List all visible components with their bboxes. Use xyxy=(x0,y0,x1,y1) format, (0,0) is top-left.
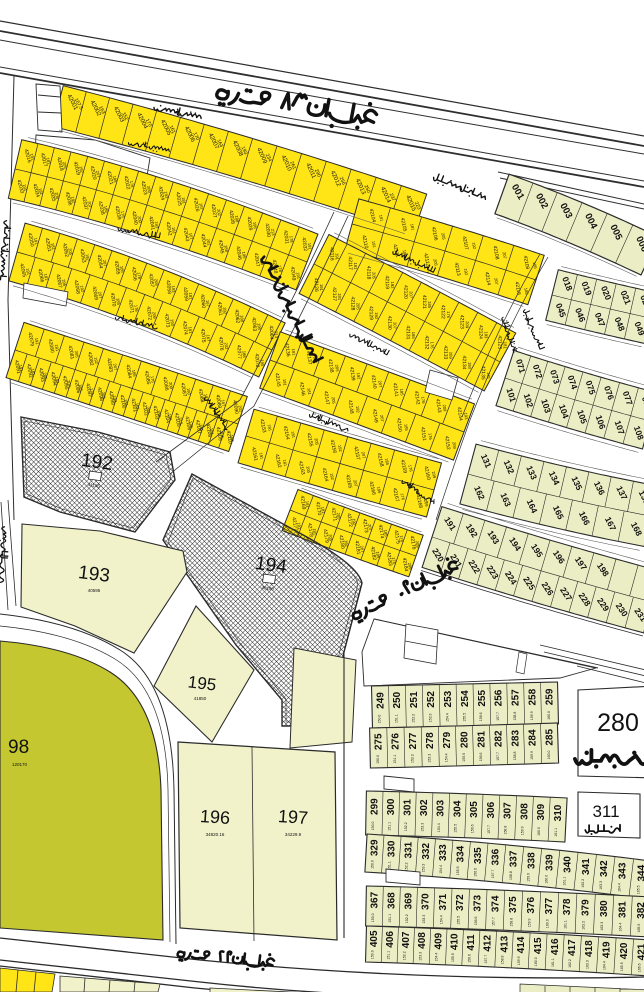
svg-text:283: 283 xyxy=(510,730,521,747)
svg-text:42133: 42133 xyxy=(442,345,448,359)
svg-text:331: 331 xyxy=(404,841,415,858)
svg-text:164.4: 164.4 xyxy=(618,883,622,892)
svg-text:337: 337 xyxy=(508,850,519,867)
svg-text:339: 339 xyxy=(544,854,555,871)
svg-text:197: 197 xyxy=(277,806,308,828)
svg-text:163.3: 163.3 xyxy=(600,922,604,931)
svg-text:157.7: 157.7 xyxy=(484,955,488,964)
svg-text:156.6: 156.6 xyxy=(474,916,478,925)
svg-text:344: 344 xyxy=(636,864,644,881)
svg-text:310: 310 xyxy=(553,804,564,821)
svg-text:193: 193 xyxy=(467,362,472,370)
svg-text:181: 181 xyxy=(503,342,508,350)
svg-text:150.0: 150.0 xyxy=(371,821,375,830)
svg-text:329: 329 xyxy=(370,839,381,856)
svg-text:416: 416 xyxy=(550,938,561,955)
svg-text:340: 340 xyxy=(563,856,574,873)
svg-text:154.4: 154.4 xyxy=(435,953,439,962)
svg-text:42134: 42134 xyxy=(461,356,467,370)
svg-text:159.9: 159.9 xyxy=(517,956,521,965)
svg-text:381: 381 xyxy=(617,901,628,918)
svg-text:306: 306 xyxy=(486,801,497,818)
svg-text:164.4: 164.4 xyxy=(603,961,607,970)
svg-text:256: 256 xyxy=(494,689,505,706)
svg-text:165.5: 165.5 xyxy=(636,885,640,894)
svg-text:411: 411 xyxy=(466,934,477,951)
svg-text:276: 276 xyxy=(391,733,402,750)
svg-text:167: 167 xyxy=(206,334,212,342)
svg-text:120170: 120170 xyxy=(12,762,28,767)
svg-text:195: 195 xyxy=(257,323,262,331)
svg-text:42135: 42135 xyxy=(480,366,486,380)
svg-text:335: 335 xyxy=(473,847,484,864)
svg-text:155.5: 155.5 xyxy=(462,713,466,722)
svg-text:42121: 42121 xyxy=(421,295,427,309)
svg-text:367: 367 xyxy=(370,891,381,908)
svg-text:152.2: 152.2 xyxy=(405,914,409,923)
svg-text:193: 193 xyxy=(484,331,489,339)
svg-text:150.0: 150.0 xyxy=(371,913,375,922)
svg-text:192: 192 xyxy=(390,282,395,290)
svg-text:157.7: 157.7 xyxy=(492,917,496,926)
svg-text:167: 167 xyxy=(205,300,211,308)
svg-text:42128: 42128 xyxy=(349,296,355,310)
svg-text:42074: 42074 xyxy=(181,321,188,336)
svg-text:159.9: 159.9 xyxy=(527,873,531,882)
svg-text:409: 409 xyxy=(433,932,444,949)
svg-text:307: 307 xyxy=(503,802,514,819)
svg-text:156.6: 156.6 xyxy=(467,954,471,963)
svg-text:155.5: 155.5 xyxy=(462,753,466,762)
svg-text:382: 382 xyxy=(636,902,644,919)
svg-text:42075: 42075 xyxy=(199,328,206,343)
svg-text:151.1: 151.1 xyxy=(388,822,392,831)
svg-text:330: 330 xyxy=(387,840,398,857)
svg-text:278: 278 xyxy=(425,732,436,749)
svg-text:309: 309 xyxy=(536,803,547,820)
svg-text:150.0: 150.0 xyxy=(371,860,375,869)
svg-text:153.3: 153.3 xyxy=(419,952,423,961)
svg-text:42117: 42117 xyxy=(347,256,353,270)
svg-text:209: 209 xyxy=(153,279,159,287)
svg-text:368: 368 xyxy=(386,892,397,909)
svg-text:192: 192 xyxy=(374,312,379,320)
svg-text:181: 181 xyxy=(188,326,194,334)
svg-text:151.1: 151.1 xyxy=(388,861,392,870)
svg-text:284: 284 xyxy=(527,729,538,746)
svg-text:374: 374 xyxy=(490,895,501,912)
svg-text:153.3: 153.3 xyxy=(421,823,425,832)
svg-text:378: 378 xyxy=(562,898,573,915)
svg-text:156.6: 156.6 xyxy=(474,868,478,877)
svg-text:152.2: 152.2 xyxy=(412,714,416,723)
svg-text:380: 380 xyxy=(599,900,610,917)
svg-text:205: 205 xyxy=(356,303,361,311)
svg-text:191: 191 xyxy=(296,522,302,530)
svg-text:407: 407 xyxy=(401,931,412,948)
svg-text:285: 285 xyxy=(544,729,555,746)
svg-text:249: 249 xyxy=(375,692,386,709)
svg-text:150.0: 150.0 xyxy=(378,715,382,724)
svg-text:277: 277 xyxy=(408,732,419,749)
svg-text:308: 308 xyxy=(519,803,530,820)
svg-text:155.5: 155.5 xyxy=(451,953,455,962)
svg-text:377: 377 xyxy=(544,897,555,914)
svg-text:153.3: 153.3 xyxy=(422,864,426,873)
svg-text:160.0: 160.0 xyxy=(547,750,551,759)
svg-text:150.0: 150.0 xyxy=(371,950,375,959)
svg-text:42060: 42060 xyxy=(199,294,206,309)
svg-text:42119: 42119 xyxy=(384,275,390,289)
svg-text:160.0: 160.0 xyxy=(534,957,538,966)
svg-text:42061: 42061 xyxy=(216,302,223,317)
svg-text:413: 413 xyxy=(499,935,510,952)
svg-text:42125: 42125 xyxy=(496,335,502,349)
svg-text:155.5: 155.5 xyxy=(454,824,458,833)
svg-text:251: 251 xyxy=(409,691,420,708)
svg-text:420: 420 xyxy=(619,942,630,959)
svg-text:300: 300 xyxy=(386,798,397,815)
svg-text:159.9: 159.9 xyxy=(520,826,524,835)
svg-text:408: 408 xyxy=(417,932,428,949)
svg-text:209: 209 xyxy=(152,312,158,320)
svg-text:373: 373 xyxy=(473,895,484,912)
svg-text:193: 193 xyxy=(77,562,111,587)
svg-text:181: 181 xyxy=(353,262,358,270)
svg-text:153.3: 153.3 xyxy=(422,915,426,924)
svg-text:34820.16: 34820.16 xyxy=(206,832,225,837)
svg-text:158.8: 158.8 xyxy=(513,712,517,721)
svg-text:191: 191 xyxy=(296,272,302,280)
svg-text:163.3: 163.3 xyxy=(599,881,603,890)
svg-text:154.4: 154.4 xyxy=(445,713,449,722)
svg-text:41850: 41850 xyxy=(194,696,207,701)
svg-text:257: 257 xyxy=(511,689,522,706)
svg-text:158.8: 158.8 xyxy=(509,918,513,927)
svg-text:42120: 42120 xyxy=(402,285,408,299)
svg-text:158.8: 158.8 xyxy=(501,955,505,964)
svg-text:301: 301 xyxy=(403,799,414,816)
svg-text:154.4: 154.4 xyxy=(439,865,443,874)
svg-text:421: 421 xyxy=(637,943,644,960)
svg-text:158.8: 158.8 xyxy=(509,871,513,880)
svg-text:371: 371 xyxy=(438,893,449,910)
svg-text:185: 185 xyxy=(427,301,432,309)
svg-text:343: 343 xyxy=(618,862,629,879)
svg-text:282: 282 xyxy=(493,730,504,747)
svg-text:154.4: 154.4 xyxy=(437,823,441,832)
svg-text:158.8: 158.8 xyxy=(513,751,517,760)
svg-text:156.6: 156.6 xyxy=(479,712,483,721)
svg-text:191: 191 xyxy=(307,243,313,251)
svg-text:341: 341 xyxy=(581,858,592,875)
svg-text:42077: 42077 xyxy=(235,345,242,359)
svg-text:299: 299 xyxy=(369,798,380,815)
svg-text:280: 280 xyxy=(459,731,470,748)
svg-text:302: 302 xyxy=(419,799,430,816)
svg-text:255: 255 xyxy=(477,690,488,707)
svg-text:253: 253 xyxy=(443,690,454,707)
svg-text:40595: 40595 xyxy=(88,588,101,593)
svg-text:161.1: 161.1 xyxy=(554,828,558,837)
svg-text:161.1: 161.1 xyxy=(563,877,567,886)
svg-text:192: 192 xyxy=(80,450,114,475)
svg-text:181: 181 xyxy=(337,293,342,301)
svg-text:157.7: 157.7 xyxy=(487,825,491,834)
svg-text:188: 188 xyxy=(242,351,247,359)
svg-text:42127: 42127 xyxy=(331,287,337,301)
svg-text:304: 304 xyxy=(452,800,463,817)
svg-text:334: 334 xyxy=(456,845,467,862)
svg-text:311: 311 xyxy=(592,802,619,821)
svg-text:42062: 42062 xyxy=(233,309,240,323)
svg-text:258: 258 xyxy=(528,688,539,705)
svg-text:280: 280 xyxy=(597,709,639,737)
svg-text:42129: 42129 xyxy=(368,306,374,320)
svg-text:152.2: 152.2 xyxy=(404,822,408,831)
svg-text:419: 419 xyxy=(602,941,613,958)
svg-text:42063: 42063 xyxy=(251,317,258,331)
svg-text:165.5: 165.5 xyxy=(637,924,641,933)
svg-text:196: 196 xyxy=(199,806,230,828)
svg-text:157.7: 157.7 xyxy=(496,752,500,761)
svg-text:305: 305 xyxy=(469,801,480,818)
svg-text:152.2: 152.2 xyxy=(410,754,414,763)
svg-text:161.1: 161.1 xyxy=(551,958,555,967)
svg-text:209: 209 xyxy=(448,352,453,360)
svg-text:281: 281 xyxy=(476,731,487,748)
svg-text:42124: 42124 xyxy=(477,325,483,339)
svg-text:406: 406 xyxy=(385,931,396,948)
svg-text:205: 205 xyxy=(371,272,376,280)
svg-text:161.1: 161.1 xyxy=(563,920,567,929)
svg-text:372: 372 xyxy=(455,894,466,911)
svg-text:160.0: 160.0 xyxy=(547,711,551,720)
svg-text:279: 279 xyxy=(442,731,453,748)
svg-text:195: 195 xyxy=(187,672,217,694)
svg-text:333: 333 xyxy=(438,844,449,861)
svg-text:42118: 42118 xyxy=(365,266,371,280)
svg-text:153.3: 153.3 xyxy=(428,713,432,722)
svg-text:379: 379 xyxy=(580,899,591,916)
svg-text:150.0: 150.0 xyxy=(376,755,380,764)
svg-text:42122: 42122 xyxy=(440,305,446,319)
svg-text:42123: 42123 xyxy=(459,315,465,329)
svg-text:332: 332 xyxy=(421,843,432,860)
svg-text:159.9: 159.9 xyxy=(530,711,534,720)
svg-text:153.3: 153.3 xyxy=(428,754,432,763)
svg-text:412: 412 xyxy=(483,935,494,952)
svg-text:188: 188 xyxy=(239,315,244,323)
svg-text:160.0: 160.0 xyxy=(545,919,549,928)
svg-text:151.1: 151.1 xyxy=(388,914,392,923)
svg-text:165.5: 165.5 xyxy=(620,962,624,971)
svg-text:259: 259 xyxy=(544,688,555,705)
svg-text:410: 410 xyxy=(450,933,461,950)
svg-text:164.4: 164.4 xyxy=(618,923,622,932)
svg-text:157.7: 157.7 xyxy=(491,869,495,878)
svg-text:202: 202 xyxy=(224,342,229,350)
svg-text:158.8: 158.8 xyxy=(504,826,508,835)
svg-text:193: 193 xyxy=(170,319,176,327)
svg-text:163.3: 163.3 xyxy=(585,960,589,969)
svg-text:42076: 42076 xyxy=(217,337,224,351)
svg-text:151.1: 151.1 xyxy=(386,951,390,960)
svg-text:207: 207 xyxy=(392,322,397,330)
svg-text:162.2: 162.2 xyxy=(581,879,585,888)
svg-text:42078: 42078 xyxy=(254,353,261,367)
svg-text:42131: 42131 xyxy=(405,326,411,340)
svg-text:157.7: 157.7 xyxy=(496,712,500,721)
svg-text:252: 252 xyxy=(426,691,437,708)
svg-text:155.5: 155.5 xyxy=(457,916,461,925)
svg-text:191: 191 xyxy=(319,284,324,292)
svg-text:166.6: 166.6 xyxy=(638,963,642,972)
svg-text:415: 415 xyxy=(533,937,544,954)
svg-text:160.0: 160.0 xyxy=(545,875,549,884)
svg-text:42064: 42064 xyxy=(268,325,275,339)
svg-text:336: 336 xyxy=(491,848,502,865)
svg-text:303: 303 xyxy=(436,800,447,817)
svg-text:202: 202 xyxy=(222,307,228,315)
svg-text:191: 191 xyxy=(335,253,340,261)
svg-text:155.5: 155.5 xyxy=(456,866,460,875)
svg-text:185: 185 xyxy=(411,332,416,340)
svg-text:162.2: 162.2 xyxy=(568,959,572,968)
svg-text:156.6: 156.6 xyxy=(479,752,483,761)
svg-text:207: 207 xyxy=(409,291,414,299)
svg-text:370: 370 xyxy=(421,893,432,910)
svg-text:375: 375 xyxy=(508,896,519,913)
svg-text:160.0: 160.0 xyxy=(537,827,541,836)
svg-text:193: 193 xyxy=(171,285,177,293)
svg-text:159.9: 159.9 xyxy=(527,918,531,927)
svg-text:181: 181 xyxy=(188,292,194,300)
svg-text:176: 176 xyxy=(430,342,435,350)
svg-text:152.2: 152.2 xyxy=(402,951,406,960)
svg-text:342: 342 xyxy=(599,860,610,877)
svg-text:417: 417 xyxy=(567,939,578,956)
svg-text:194: 194 xyxy=(254,553,289,578)
svg-text:154.4: 154.4 xyxy=(439,915,443,924)
svg-text:275: 275 xyxy=(374,733,385,750)
svg-text:42132: 42132 xyxy=(423,335,429,349)
svg-text:151.1: 151.1 xyxy=(393,755,397,764)
svg-text:156.6: 156.6 xyxy=(470,824,474,833)
svg-text:418: 418 xyxy=(584,940,595,957)
svg-text:254: 254 xyxy=(460,690,471,707)
svg-text:151.1: 151.1 xyxy=(395,714,399,723)
svg-text:42116: 42116 xyxy=(328,247,334,261)
svg-text:414: 414 xyxy=(516,936,527,953)
svg-text:152.2: 152.2 xyxy=(405,862,409,871)
svg-text:376: 376 xyxy=(526,897,537,914)
svg-text:176: 176 xyxy=(446,311,451,319)
svg-text:162.2: 162.2 xyxy=(582,921,586,930)
svg-text:209: 209 xyxy=(465,321,470,329)
svg-text:369: 369 xyxy=(403,892,414,909)
svg-text:250: 250 xyxy=(392,691,403,708)
svg-text:154.4: 154.4 xyxy=(445,753,449,762)
svg-text:159.9: 159.9 xyxy=(530,751,534,760)
svg-text:98: 98 xyxy=(8,737,29,758)
svg-text:34229.9: 34229.9 xyxy=(285,832,302,837)
svg-text:42130: 42130 xyxy=(386,316,392,330)
svg-text:338: 338 xyxy=(526,852,537,869)
svg-text:405: 405 xyxy=(369,930,380,947)
